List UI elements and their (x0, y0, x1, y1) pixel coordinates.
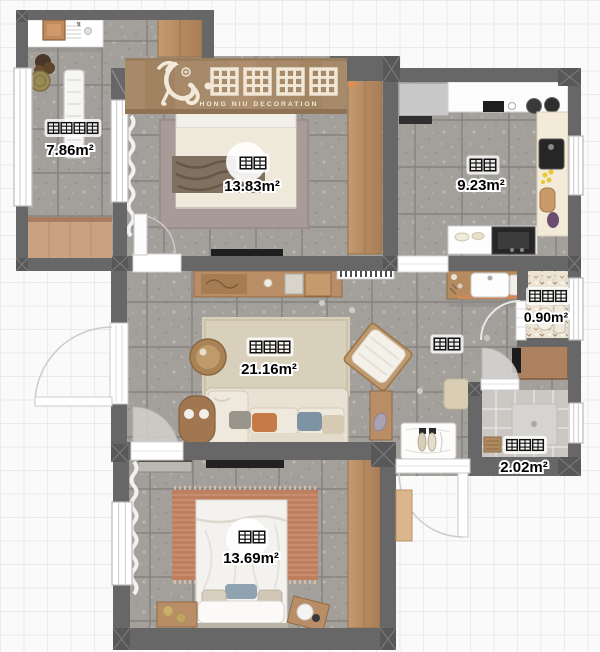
svg-text:21.16m²: 21.16m² (241, 361, 297, 378)
svg-text:0.90m²: 0.90m² (524, 309, 569, 325)
svg-text:HONG NIU DECORATION: HONG NIU DECORATION (199, 101, 318, 108)
svg-text:9.23m²: 9.23m² (457, 177, 505, 194)
svg-text:7.86m²: 7.86m² (46, 142, 94, 159)
svg-text:13.69m²: 13.69m² (223, 550, 279, 567)
svg-text:2.02m²: 2.02m² (500, 459, 548, 476)
svg-text:13.83m²: 13.83m² (224, 178, 280, 195)
